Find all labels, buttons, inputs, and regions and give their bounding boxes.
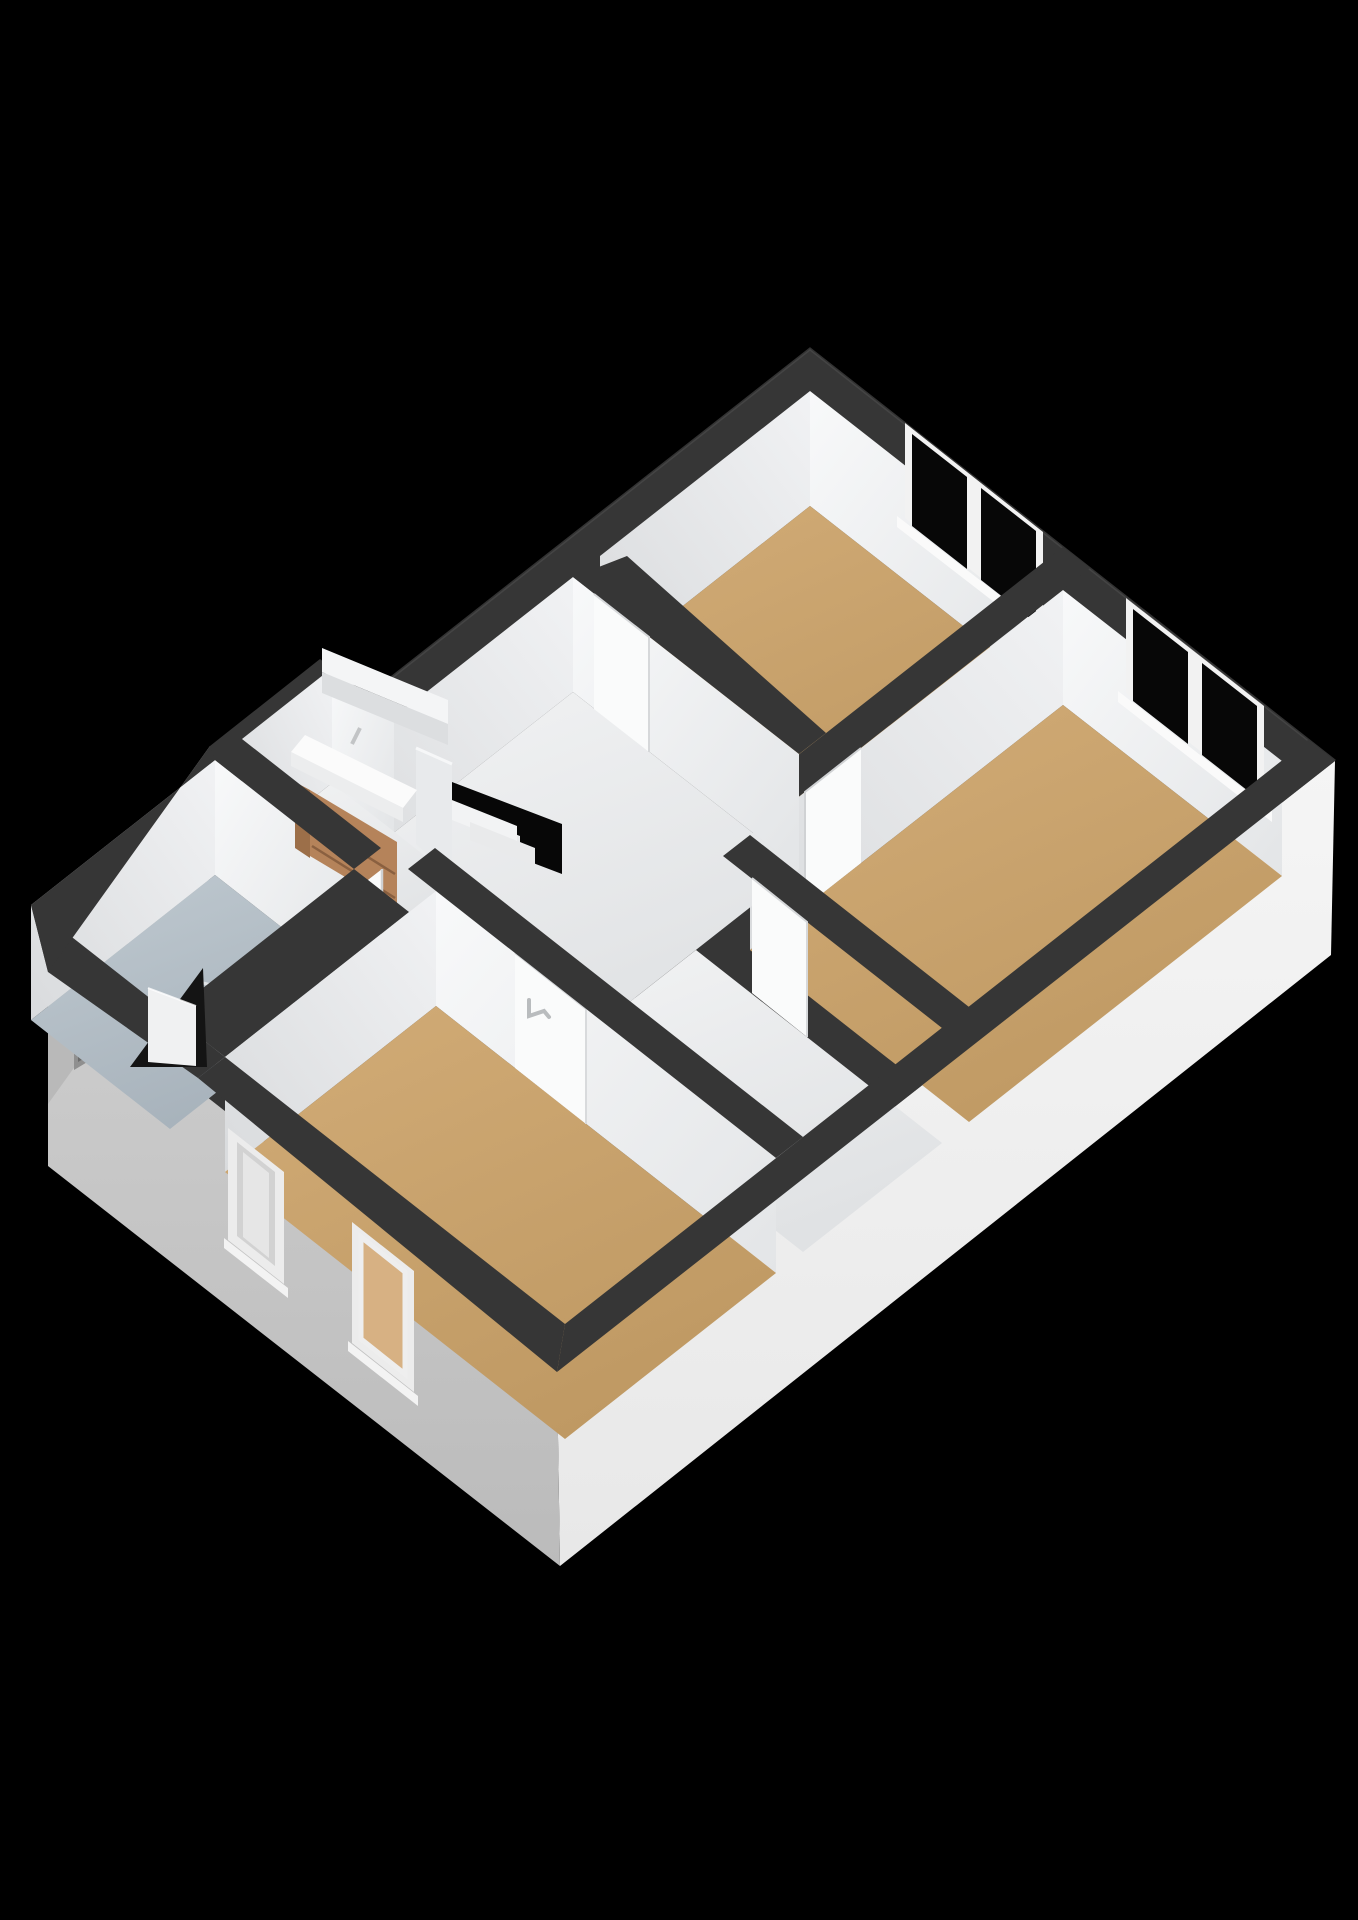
floorplan-canvas (0, 0, 1358, 1920)
floorplan-3d-render (0, 0, 1358, 1920)
